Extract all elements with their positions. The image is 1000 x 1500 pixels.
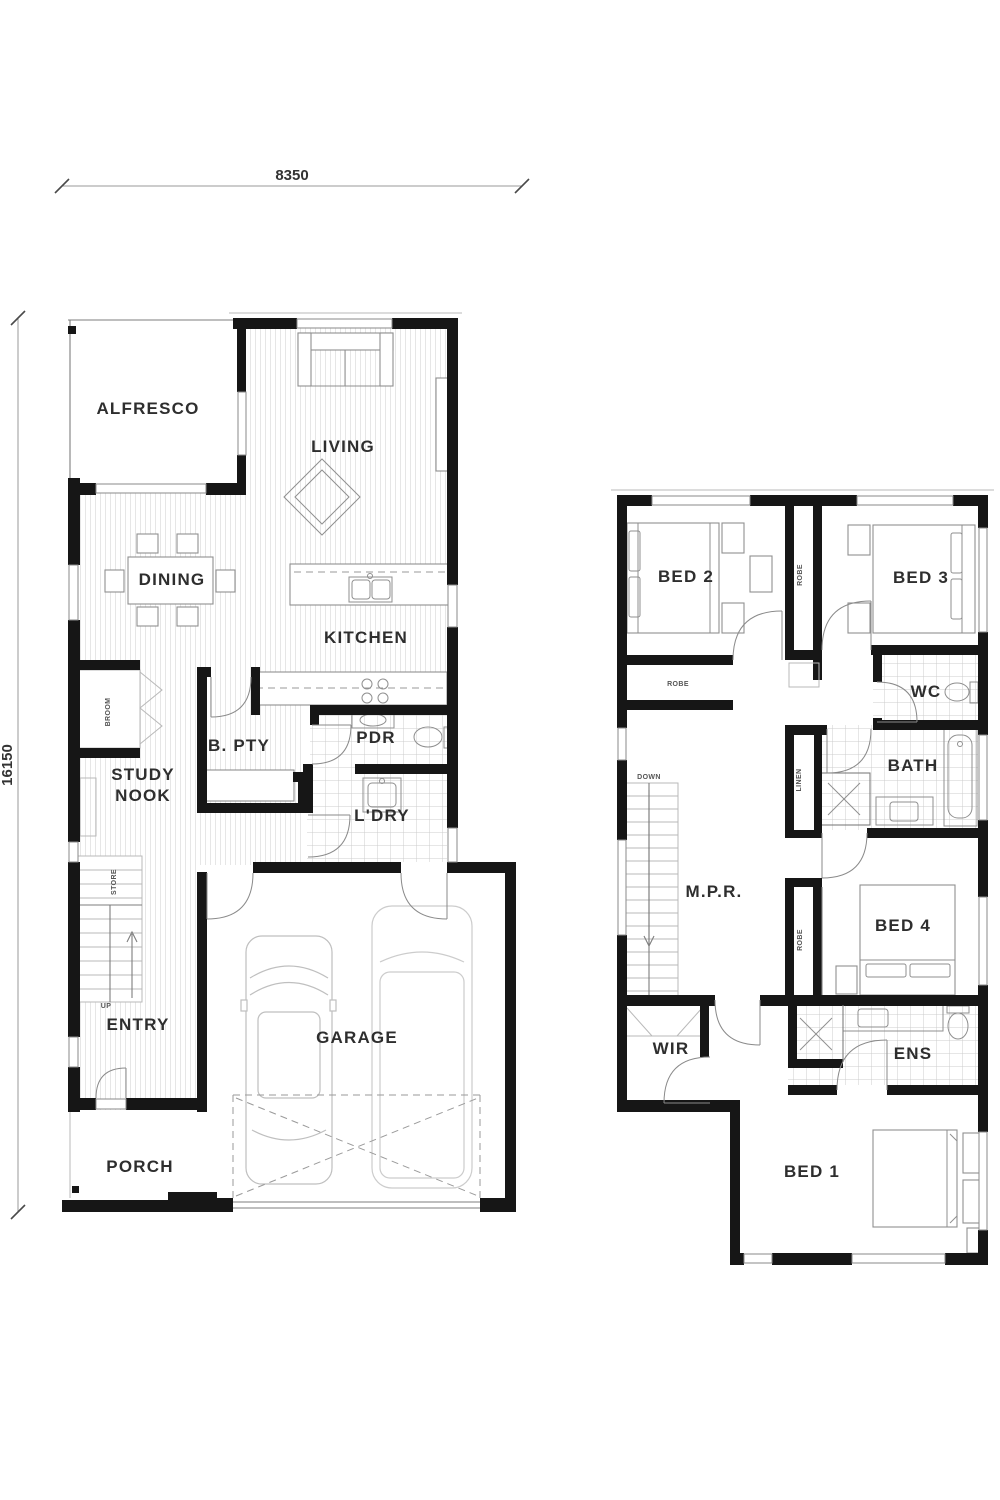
- room-label-alfresco: ALFRESCO: [96, 399, 199, 418]
- room-label-study-nook-line2: NOOK: [115, 786, 171, 805]
- room-label-bed1: BED 1: [784, 1162, 840, 1181]
- closet-label-broom: BROOM: [105, 698, 112, 727]
- dimension-width-label: 8350: [275, 167, 308, 184]
- room-label-entry: ENTRY: [107, 1015, 170, 1034]
- room-label-wir: WIR: [653, 1039, 690, 1058]
- room-label-wc: WC: [911, 682, 942, 701]
- floor-plan-page: 8350 16150: [0, 0, 1000, 1500]
- closet-label-robe-bed4: ROBE: [797, 929, 804, 951]
- room-label-bed4: BED 4: [875, 916, 931, 935]
- room-label-bed3: BED 3: [893, 568, 949, 587]
- upper-floor-furniture: [620, 523, 983, 1253]
- dimension-height-label: 16150: [0, 744, 16, 786]
- upper-floor-plan: BED 2 BED 3 WC BATH M.P.R. BED 4 WIR ENS…: [611, 490, 994, 1265]
- room-label-porch: PORCH: [106, 1157, 173, 1176]
- room-label-powder: PDR: [356, 728, 396, 747]
- closet-label-robe-hall: ROBE: [797, 564, 804, 586]
- upper-floor-flooring: [788, 655, 978, 1085]
- room-label-butlers-pantry: B. PTY: [208, 736, 270, 755]
- stairs-label-up: UP: [101, 1003, 112, 1010]
- closet-label-store: STORE: [111, 869, 118, 895]
- room-label-living: LIVING: [311, 437, 375, 456]
- floor-plan-drawing: 8350 16150: [0, 0, 1000, 1500]
- ground-floor-plan: ALFRESCO LIVING DINING KITCHEN STUDY NOO…: [62, 313, 516, 1212]
- stairs-label-down: DOWN: [637, 774, 661, 781]
- closet-label-robe-bed2: ROBE: [667, 681, 689, 688]
- room-label-garage: GARAGE: [316, 1028, 398, 1047]
- room-label-mpr: M.P.R.: [686, 882, 743, 901]
- room-label-study-nook-line1: STUDY: [111, 765, 175, 784]
- closet-label-linen: LINEN: [796, 769, 803, 792]
- room-label-bed2: BED 2: [658, 567, 714, 586]
- room-label-dining: DINING: [139, 570, 206, 589]
- room-label-bath: BATH: [888, 756, 939, 775]
- room-label-ens: ENS: [894, 1044, 933, 1063]
- room-label-kitchen: KITCHEN: [324, 628, 408, 647]
- room-label-laundry: L'DRY: [354, 806, 410, 825]
